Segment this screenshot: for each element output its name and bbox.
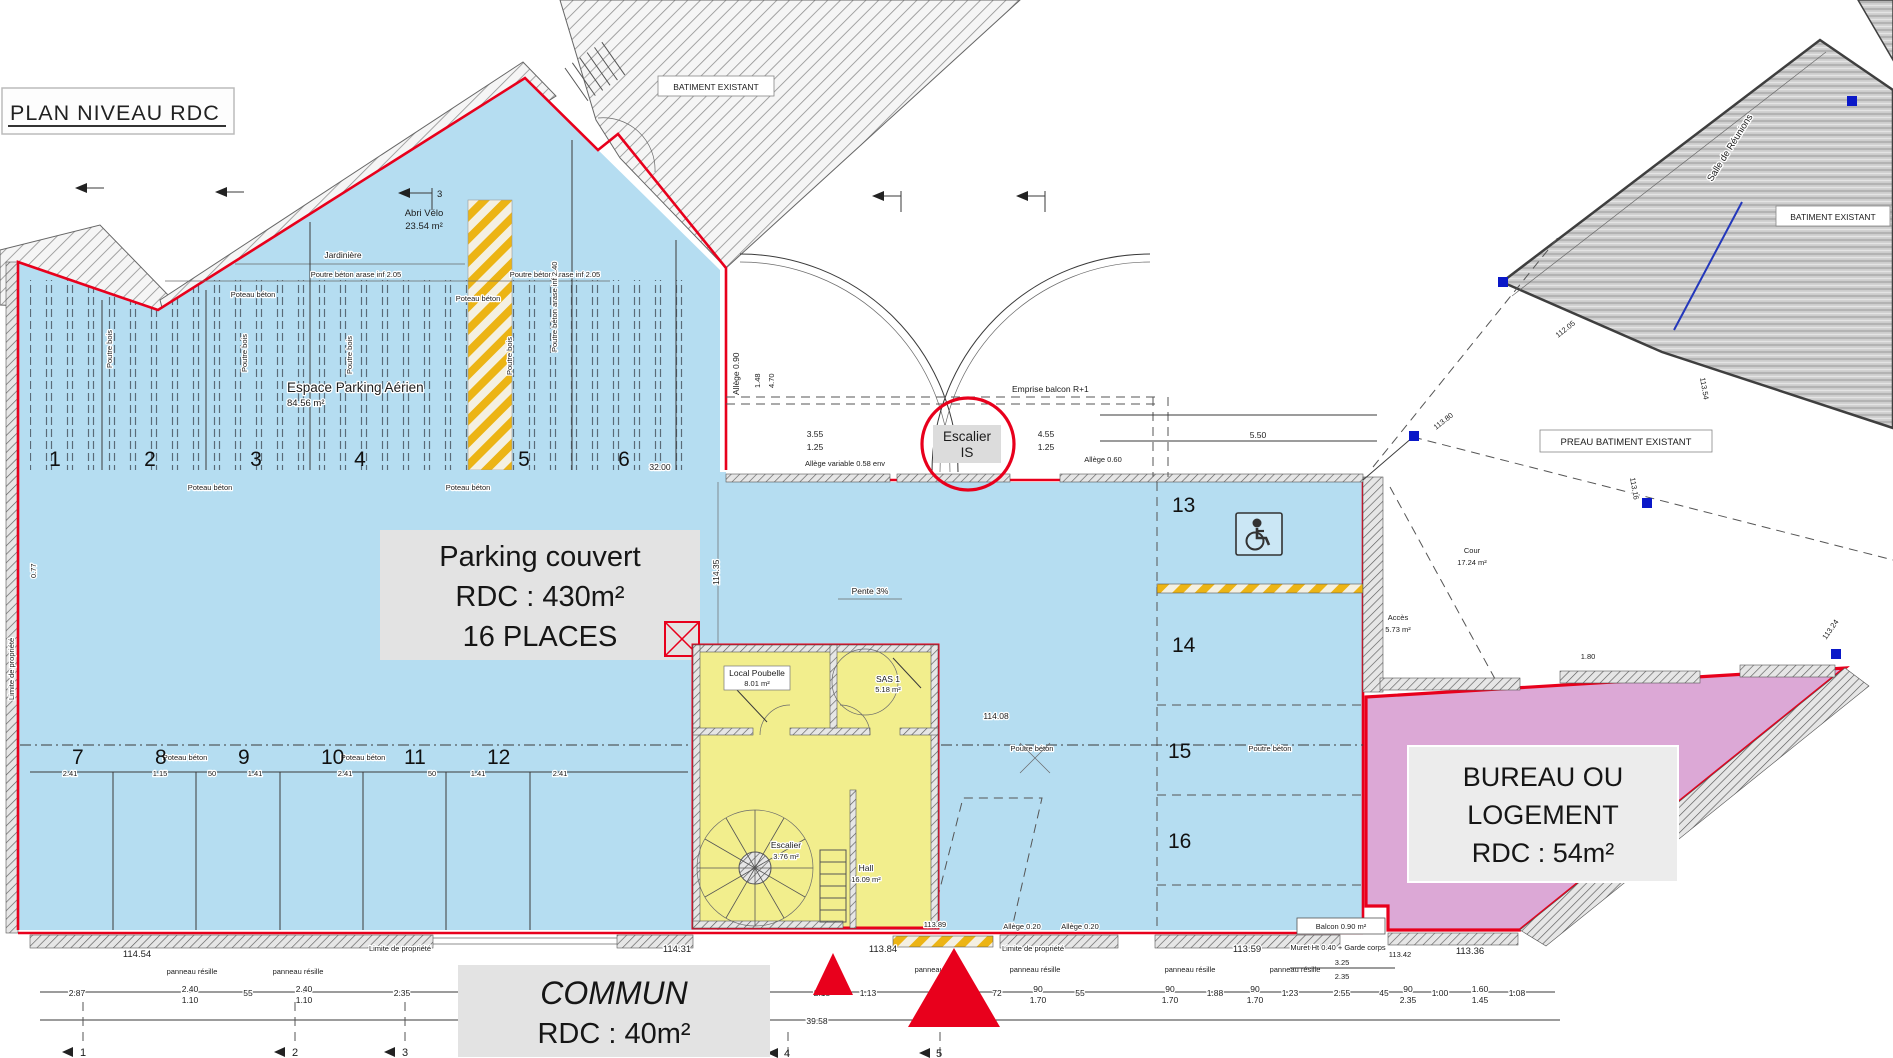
right-wall [1363,477,1383,692]
entrance-triangle-small [813,953,853,995]
cour-area: 17.24 m² [1457,558,1487,567]
poteau-beton-label: Poteau béton [231,290,276,299]
panneau-resille-label: panneau résille [167,967,218,976]
dim-3-55: 3.55 [807,429,824,439]
axis-1: 1 [80,1047,86,1058]
dim-value: 90 [1165,984,1175,994]
parking-couvert-label: Parking couvert RDC : 430m² 16 PLACES [380,530,700,660]
poutre-beton-label: Poutre béton [1011,744,1054,753]
dim-4-70: 4.70 [767,373,776,388]
level-113-36: 113.36 [1456,946,1484,957]
allege-090-label: Allège 0.90 [731,352,741,395]
dim-total: 39.58 [806,1016,828,1026]
batiment-existant-right-label: BATIMENT EXISTANT [1790,212,1875,222]
dim-value: 2.55 [1334,988,1351,998]
bureau-zone: BUREAU OU LOGEMENT RDC : 54m² [1366,665,1869,946]
allege-060-label: Allège 0.60 [1084,455,1122,464]
escalier-is-label: Escalier [943,429,992,444]
pente-label: Pente 3% [852,586,889,596]
drawing-title: PLAN NIVEAU RDC [2,88,234,134]
boundary-marker [1831,649,1841,659]
level-113-84: 113.84 [869,944,897,955]
level-114-54: 114.54 [123,949,151,960]
bureau-line2: LOGEMENT [1467,800,1619,830]
dim-1-80: 1.80 [1581,652,1596,661]
dim-value: 2.41 [63,769,78,778]
emprise-balcon-label: Emprise balcon R+1 [1012,384,1089,394]
poteau-beton-label: Poteau béton [188,483,233,492]
hall-area: 16.09 m² [851,875,881,884]
dim-value: 1.23 [1282,988,1299,998]
sas-area: 5.18 m² [875,685,901,694]
yellow-hatch-strip-13 [1157,584,1363,593]
allege-020-label: Allège 0.20 [1061,922,1099,931]
parking-couvert-line3: 16 PLACES [463,621,618,653]
stall-number-2: 2 [144,448,156,471]
limite-propriete-left-label: Limite de propriété [7,638,16,700]
hall-label: Hall [859,863,874,873]
commun-line1: COMMUN [540,975,688,1011]
dim-value: 1.70 [1030,995,1047,1005]
level-114-35: 114.35 [711,559,721,585]
level-114-31: 114.31 [663,944,691,955]
dim-1-25: 1.25 [807,442,824,452]
dim-2-35: 2.35 [1335,972,1350,981]
stall-number-15: 15 [1168,740,1191,763]
wheelchair-icon [1236,513,1282,555]
door-swing-arc [740,254,958,472]
joists [30,280,690,472]
preau-label: PREAU BATIMENT EXISTANT [1561,437,1692,448]
stall-number-9: 9 [238,746,250,769]
level-113-54: 113.54 [1698,377,1711,401]
dim-value: 2.87 [69,988,86,998]
stall-number-11: 11 [404,746,426,769]
dim-value: 1.70 [1162,995,1179,1005]
stall-number-3: 3 [250,448,262,471]
stall-number-8: 8 [155,746,167,769]
limite-propriete-label: Limite de propriété [1002,944,1064,953]
local-poubelle-area: 8.01 m² [744,679,770,688]
axis-5: 5 [936,1048,942,1058]
dim-value: 1.10 [182,995,199,1005]
escalier-is-label2: IS [961,445,974,460]
level-113-42: 113.42 [1389,950,1411,959]
local-poubelle-label: Local Poubelle [729,668,785,678]
stall-number-1: 1 [49,448,61,471]
balcon-label: Balcon 0.90 m² [1316,922,1367,931]
dim-value: 1.60 [1472,984,1489,994]
axis-top-3: 3 [437,189,442,200]
dim-value: 1.00 [1432,988,1449,998]
dim-value: 2.35 [394,988,411,998]
dim-value: 45 [1379,988,1389,998]
stall-number-5: 5 [518,448,530,471]
escalier-label: Escalier [771,840,801,850]
cour-label: Cour [1464,546,1481,555]
dim-1-25: 1.25 [1038,442,1055,452]
left-wall [6,262,18,933]
dim-0-77: 0.77 [29,563,38,578]
entrance-triangle-large [908,948,1000,1027]
poteau-beton-label: Poteau béton [446,483,491,492]
boundary-marker [1847,96,1857,106]
poutre-bois-label: Poutre bois [505,337,514,375]
boundary-marker [1642,498,1652,508]
stall-number-12: 12 [487,746,510,769]
abri-velo-area: 23.54 m² [405,221,443,232]
espace-parking-label: Espace Parking Aérien [287,380,424,395]
level-113-80: 113.80 [1432,411,1455,432]
dim-3-25: 3.25 [1335,958,1350,967]
bureau-line3: RDC : 54m² [1472,838,1615,868]
bureau-line1: BUREAU OU [1463,762,1624,792]
panneau-resille-label: panneau résille [1270,965,1321,974]
stall-number-4: 4 [354,448,366,471]
parking-couvert-line1: Parking couvert [439,541,641,573]
poteau-beton-label: Poteau béton [456,294,501,303]
dim-value: 1.08 [1509,988,1526,998]
allege-020-label: Allège 0.20 [1003,922,1041,931]
boundary-marker [1498,277,1508,287]
panneau-resille-label: panneau résille [1165,965,1216,974]
dim-value: 2.40 [182,984,199,994]
abri-velo-label: Abri Vélo [405,208,444,219]
sas-label: SAS 1 [876,674,900,684]
poutre-bois-label: Poutre bois [105,330,114,368]
level-113-89: 113.89 [924,920,946,929]
yellow-hatch-strip-bottom [893,936,993,947]
escalier-area: 3.76 m² [773,852,799,861]
poutre-beton-label: Poutre béton [1249,744,1292,753]
allege-variable-label: Allège variable 0.58 env [805,459,885,468]
stall-number-6: 6 [618,448,630,471]
dim-value: 90 [1403,984,1413,994]
level-113-24: 113.24 [1820,618,1840,642]
poteau-beton-label: Poteau béton [341,753,386,762]
panneau-resille-label: panneau résille [1010,965,1061,974]
dim-value: 2.41 [553,769,568,778]
dim-value: 90 [1250,984,1260,994]
boundary-marker [1409,431,1419,441]
muret-label: Muret Ht 0.40 + Garde corps [1290,943,1386,952]
stall-number-14: 14 [1172,634,1196,657]
dim-value: 1.13 [860,988,877,998]
dim-value: 2.35 [1400,995,1417,1005]
dim-value: 1.70 [1247,995,1264,1005]
stall-number-7: 7 [72,746,84,769]
stall-number-16: 16 [1168,830,1191,853]
poutre-beton-arase-label: Poutre béton arase inf 2.05 [311,270,401,279]
batiment-existant-top-label: BATIMENT EXISTANT [673,82,758,92]
dim-32-00: 32.00 [649,462,671,472]
poteau-beton-label: Poteau béton [163,753,208,762]
axis-3: 3 [402,1047,408,1058]
level-113-16: 113.16 [1628,477,1641,501]
commun-core: Local Poubelle 8.01 m² SAS 1 5.18 m² Esc… [693,645,938,928]
level-114-08: 114.08 [983,711,1009,721]
jardiniere-label: Jardinière [324,250,362,260]
dim-value: 72 [992,988,1002,998]
yellow-hatch-strip-top [468,200,512,470]
dim-5-50: 5.50 [1250,430,1267,440]
dim-value: 50 [208,769,216,778]
dim-value: 2.41 [338,769,353,778]
limite-propriete-label: Limite de propriété [369,944,431,953]
stall-number-10: 10 [321,746,344,769]
poutre-beton-240-label: Poutre béton arase inf 2.40 [550,262,559,352]
axis-4: 4 [784,1048,790,1058]
acces-label: Accès [1388,613,1409,622]
dim-value: 1.45 [1472,995,1489,1005]
espace-parking-area: 84.56 m² [287,398,325,409]
dim-4-55: 4.55 [1038,429,1055,439]
dim-1-48: 1.48 [753,373,762,388]
dim-value: 1.41 [471,769,486,778]
poutre-bois-label: Poutre bois [240,334,249,372]
dim-value: 1.15 [153,769,168,778]
dim-value: 55 [1075,988,1085,998]
poutre-bois-label: Poutre bois [345,336,354,374]
floor-plan-sheet: Jardinière Poutre béton arase inf 2.05 P… [0,0,1893,1058]
dim-value: 90 [1033,984,1043,994]
parking-couvert-line2: RDC : 430m² [455,581,625,613]
dim-value: 55 [243,988,253,998]
level-112-05: 112.05 [1554,319,1577,340]
commun-line2: RDC : 40m² [537,1018,690,1050]
page-title: PLAN NIVEAU RDC [10,101,220,125]
dim-value: 1.88 [1207,988,1224,998]
dim-value: 1.10 [296,995,313,1005]
dim-value: 1.41 [248,769,263,778]
commun-label: COMMUN RDC : 40m² [458,965,770,1057]
stall-number-13: 13 [1172,494,1195,517]
axis-2: 2 [292,1047,298,1058]
acces-area: 5.73 m² [1385,625,1411,634]
level-113-59: 113.59 [1233,944,1261,955]
panneau-resille-label: panneau résille [273,967,324,976]
floor-plan-drawing: Jardinière Poutre béton arase inf 2.05 P… [0,0,1893,1058]
dim-value: 50 [428,769,436,778]
dim-value: 2.40 [296,984,313,994]
